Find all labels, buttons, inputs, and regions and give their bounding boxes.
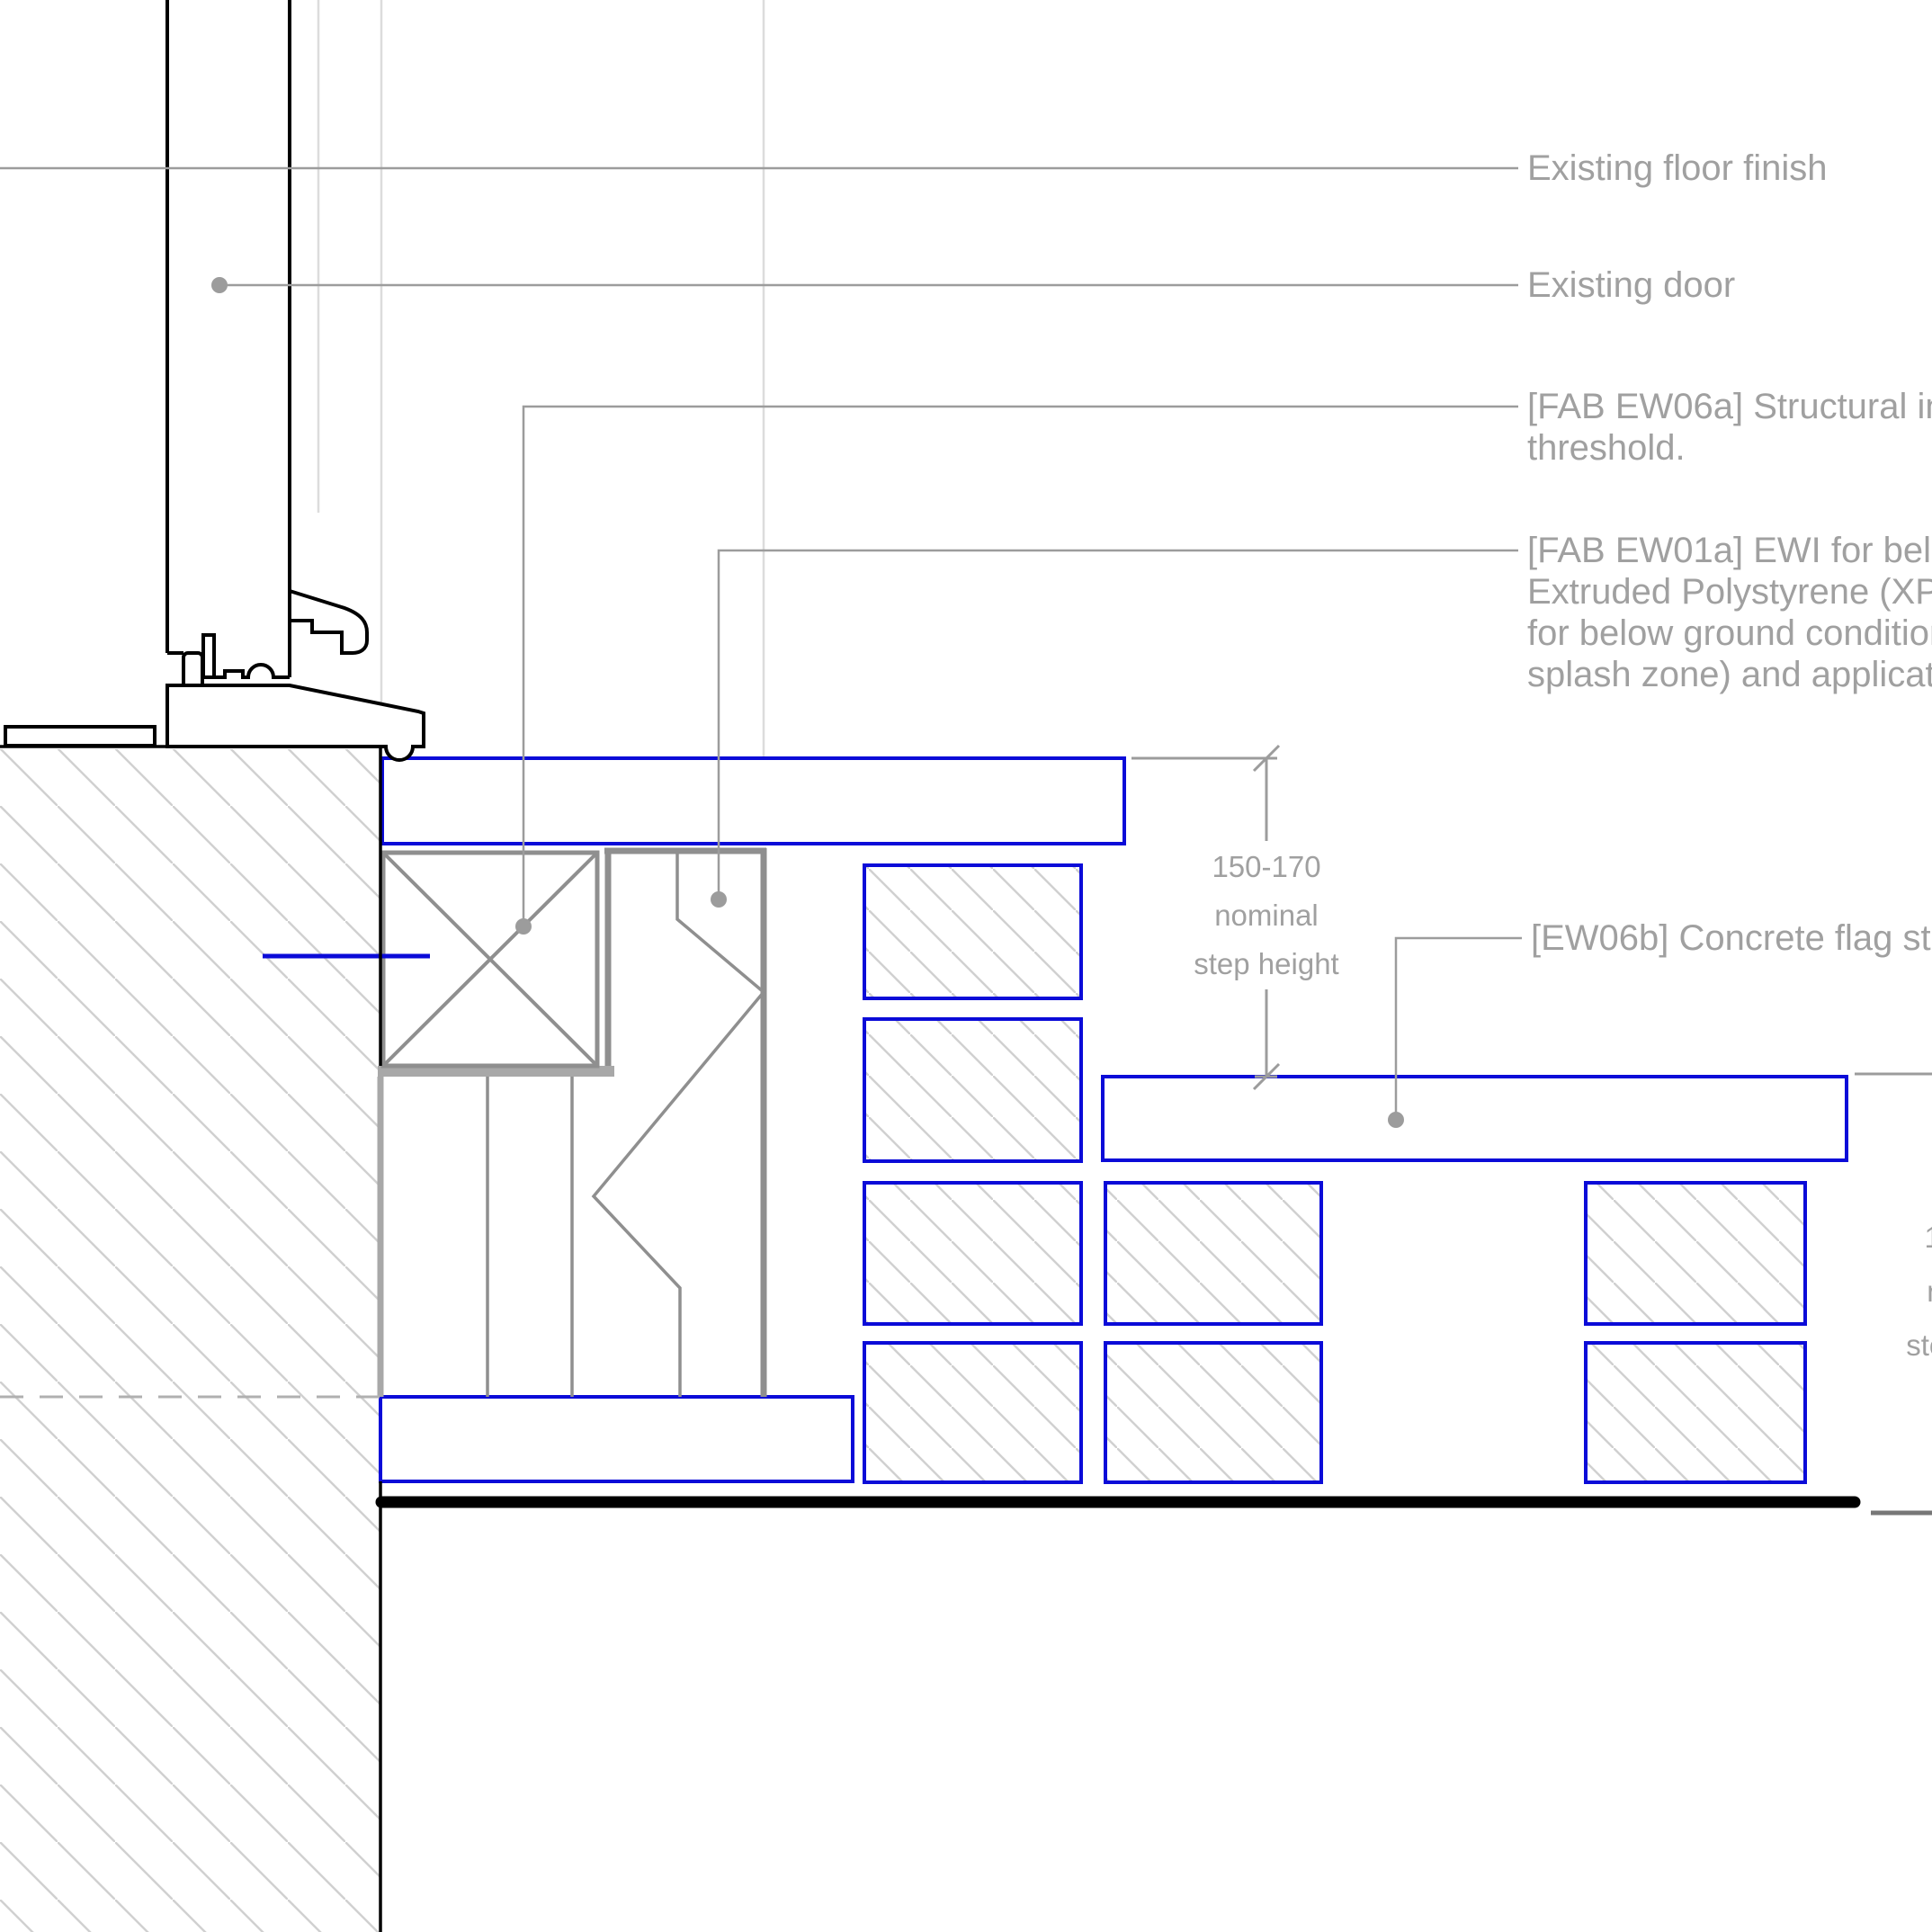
callout-existing-floor-finish: Existing floor finish	[1527, 148, 1827, 189]
concrete-flag-step	[1103, 1077, 1847, 1160]
callout-line: threshold.	[1527, 427, 1932, 469]
callout-line: splash zone) and application	[1527, 654, 1932, 695]
step-height-dimension-text-right: 150-170 nominal step height	[1906, 1211, 1932, 1373]
threshold-upstand	[203, 635, 214, 677]
dimension-text-line: nominal	[1906, 1265, 1932, 1319]
paving-flag	[864, 1183, 1081, 1324]
callout-line: [FAB EW06a] Structural insulated	[1527, 386, 1932, 427]
drip-profile	[290, 591, 367, 653]
foundation-strip	[380, 1397, 853, 1481]
paving-flag	[864, 1019, 1081, 1161]
step-height-dimension-text: 150-170 nominal step height	[1194, 843, 1338, 988]
dimension-text-line: 150-170	[1906, 1211, 1932, 1265]
concrete-flag-threshold	[382, 758, 1124, 844]
callout-existing-door: Existing door	[1527, 264, 1735, 306]
callout-fab-ew06a: [FAB EW06a] Structural insulated thresho…	[1527, 386, 1932, 469]
projection-lines	[318, 0, 764, 758]
threshold-sill	[167, 685, 424, 760]
dimension-text-line: nominal	[1194, 891, 1338, 940]
insulated-threshold-box	[378, 853, 614, 1077]
leader-ew01a	[719, 550, 1518, 899]
leader-dot	[1388, 1112, 1404, 1128]
callout-line: [FAB EW01a] EWI for below	[1527, 530, 1932, 571]
callout-line: Extruded Polystyrene (XPS)	[1527, 571, 1932, 613]
callout-fab-ew01a: [FAB EW01a] EWI for below Extruded Polys…	[1527, 530, 1932, 695]
paving-flag	[864, 865, 1081, 998]
dimension-text-line: step height	[1906, 1319, 1932, 1373]
callout-ew06b: [EW06b] Concrete flag steps	[1531, 917, 1932, 959]
existing-wall-hatch	[0, 749, 380, 1932]
leader-dot	[711, 891, 727, 908]
insulation-zigzag	[594, 853, 764, 1397]
leader-dot	[515, 918, 532, 935]
dimension-text-line: 150-170	[1194, 843, 1338, 891]
paving-flag	[1105, 1183, 1321, 1324]
paving-flag	[864, 1343, 1081, 1482]
paving-flag	[1105, 1343, 1321, 1482]
paving-flag	[1586, 1183, 1805, 1324]
leader-dot	[211, 277, 228, 293]
paving-flag	[1586, 1343, 1805, 1482]
callout-line: for below ground conditions	[1527, 613, 1932, 654]
threshold-detail-drawing: Existing floor finish Existing door [FAB…	[0, 0, 1932, 1932]
dimension-text-line: step height	[1194, 940, 1338, 988]
floor-finish-slab	[5, 727, 155, 746]
